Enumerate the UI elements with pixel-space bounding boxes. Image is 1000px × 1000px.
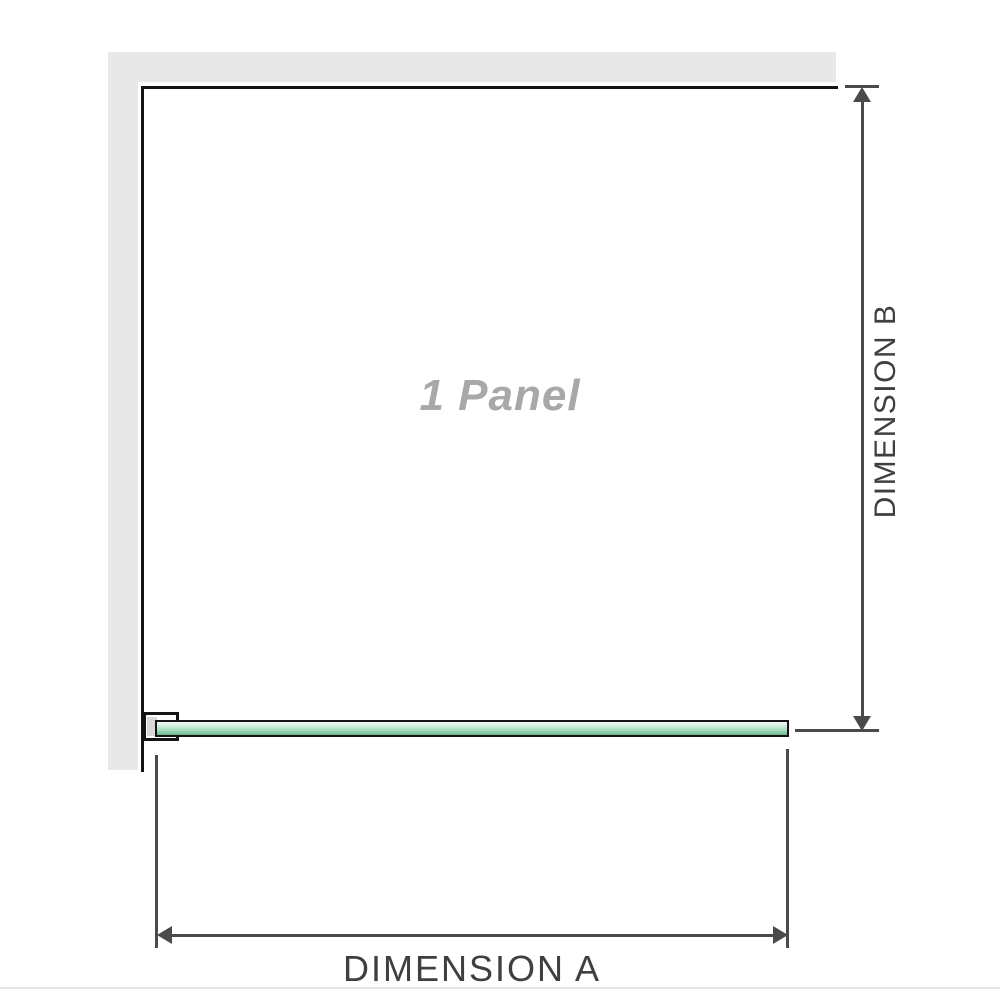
wall-top bbox=[108, 52, 836, 82]
arrowhead-down-icon bbox=[853, 716, 871, 731]
panel-count-label: 1 Panel bbox=[419, 371, 580, 421]
dimension-b-line bbox=[861, 96, 864, 722]
arrowhead-up-icon bbox=[853, 87, 871, 102]
glass-panel bbox=[155, 720, 789, 737]
page-baseline-rule bbox=[0, 987, 1000, 989]
dimension-a-extension-left bbox=[155, 755, 158, 948]
arrowhead-right-icon bbox=[773, 926, 788, 944]
dimension-b-label: DIMENSION B bbox=[869, 304, 903, 519]
arrowhead-left-icon bbox=[157, 926, 172, 944]
dimension-a-label: DIMENSION A bbox=[343, 948, 601, 990]
dimension-a-line bbox=[166, 934, 778, 937]
panel-dimension-diagram: 1 Panel DIMENSION B DIMENSION A bbox=[0, 0, 1000, 1000]
panel-outline-top bbox=[141, 86, 838, 89]
panel-outline-left bbox=[141, 86, 144, 772]
wall-left bbox=[108, 52, 138, 770]
dimension-a-extension-right bbox=[786, 749, 789, 948]
